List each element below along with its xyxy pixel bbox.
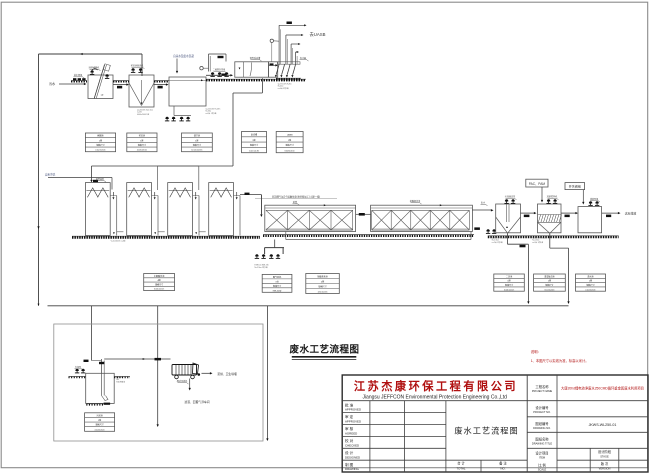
svg-text:JKWS-WL250-01: JKWS-WL250-01 [589,423,617,427]
svg-text:排放泵组: 排放泵组 [590,197,598,201]
svg-text:PAC、PAM: PAC、PAM [529,182,546,186]
svg-text:出水: 出水 [481,201,486,205]
svg-text:审 定: 审 定 [345,414,354,419]
svg-text:调节池: 调节池 [194,134,200,138]
svg-text:1号: 1号 [100,93,103,97]
svg-text:污泥泵: 污泥泵 [75,365,81,369]
svg-text:二沉池: 二沉池 [506,274,512,278]
svg-text:去UASB: 去UASB [310,31,326,38]
svg-text:1座: 1座 [507,279,510,283]
svg-text:初沉池: 初沉池 [139,134,145,138]
svg-text:自来冲洗: 自来冲洗 [45,173,56,177]
svg-text:1座: 1座 [288,138,291,142]
svg-text:APPROVED: APPROVED [345,408,361,412]
svg-text:混凝反应池: 混凝反应池 [544,274,554,278]
svg-text:1座: 1座 [548,279,551,283]
svg-text:规格尺寸: 规格尺寸 [505,283,513,287]
svg-text:水解酸化池: 水解酸化池 [154,274,164,278]
svg-text:规格尺寸: 规格尺寸 [96,143,104,147]
svg-text:废水工艺流程图: 废水工艺流程图 [289,344,359,356]
svg-text:NO.: NO. [500,467,505,471]
svg-text:AGREED: AGREED [345,432,357,436]
svg-text:规格尺寸: 规格尺寸 [250,143,258,147]
svg-text:规格尺寸: 规格尺寸 [545,283,553,287]
svg-text:8.0x8.0x6.5m: 8.0x8.0x6.5m [285,151,296,153]
svg-text:1座: 1座 [98,418,101,422]
svg-text:进水阀组: 进水阀组 [74,73,82,77]
svg-text:清水池: 清水池 [587,274,593,278]
svg-text:PROJECT NAME: PROJECT NAME [532,389,553,393]
svg-text:4.0x3.0x3.0m: 4.0x3.0x3.0m [95,429,106,431]
svg-text:V=4x110m3 n=4座: V=4x110m3 n=4座 [111,238,126,242]
svg-text:Jiangsu JEFFCON Environmental: Jiangsu JEFFCON Environmental Protection… [362,394,507,400]
svg-text:图纸编号: 图纸编号 [535,421,549,426]
svg-text:4.0x3.0x3.5m: 4.0x3.0x3.5m [137,150,148,152]
svg-text:混合反应槽: 混合反应槽 [250,56,260,60]
svg-text:3台: 3台 [275,279,278,283]
svg-text:规格尺寸: 规格尺寸 [586,283,594,287]
svg-text:废水工艺流程图: 废水工艺流程图 [454,425,518,435]
svg-text:斜管: 斜管 [293,200,297,204]
svg-text:接触氧化池: 接触氧化池 [410,199,420,203]
svg-text:12.0x6.0x3.5m: 12.0x6.0x3.5m [191,150,203,152]
svg-text:设计项目: 设计项目 [535,450,548,455]
svg-text:滤液、回蓄气浮车间: 滤液、回蓄气浮车间 [184,400,209,404]
svg-text:DESIGNED: DESIGNED [345,455,360,459]
svg-text:规格尺寸: 规格尺寸 [138,143,146,147]
svg-text:CHECKED: CHECKED [345,443,359,447]
svg-text:4.0x2.5x3.0m: 4.0x2.5x3.0m [95,150,106,152]
svg-text:1座: 1座 [99,138,102,142]
svg-text:1座: 1座 [252,138,255,142]
svg-text:比 例: 比 例 [538,462,546,467]
svg-text:合 计: 合 计 [457,461,465,466]
svg-text:接触氧化池: 接触氧化池 [317,274,327,278]
svg-text:审 核: 审 核 [345,426,354,431]
svg-text:厢式压滤机: 厢式压滤机 [177,379,188,383]
svg-text:校 对: 校 对 [345,438,354,443]
svg-text:1座: 1座 [195,138,198,142]
svg-text:工程名称: 工程名称 [535,384,549,389]
svg-text:规格尺寸: 规格尺寸 [95,423,103,427]
svg-text:版 次: 版 次 [601,461,609,466]
svg-text:4座: 4座 [157,278,160,282]
svg-text:污泥池: 污泥池 [96,413,102,417]
svg-text:DRAWING: DRAWING [345,467,360,471]
svg-text:说明：: 说明： [531,349,541,354]
svg-text:加药搅拌机: 加药搅拌机 [547,195,558,199]
svg-text:1座: 1座 [140,138,143,142]
svg-text:批 准: 批 准 [345,402,354,407]
svg-text:规格尺寸: 规格尺寸 [193,143,201,147]
svg-text:图纸名称: 图纸名称 [535,437,549,442]
svg-text:3.0x3.0x4.0m: 3.0x3.0x4.0m [544,289,555,291]
svg-text:DRAWING TITLE: DRAWING TITLE [532,442,552,446]
svg-text:ITEM: ITEM [539,455,545,459]
svg-text:反应槽: 反应槽 [251,133,257,137]
svg-text:备 注: 备 注 [499,461,507,466]
svg-text:PROJECT NO.: PROJECT NO. [533,410,551,414]
svg-text:规格尺寸: 规格尺寸 [155,282,163,286]
svg-text:VERSION: VERSION [599,466,611,470]
svg-text:4.0x3.0x3.0m: 4.0x3.0x3.0m [585,289,596,291]
svg-text:开关阀组: 开关阀组 [569,184,581,189]
svg-text:设计阶段: 设计阶段 [598,449,612,454]
svg-text:DRAWING NO.: DRAWING NO. [533,426,551,430]
svg-text:泥饼、卫生填埋: 泥饼、卫生填埋 [217,372,237,376]
svg-text:设计编号: 设计编号 [535,405,549,410]
svg-text:STAGE: STAGE [600,454,609,458]
svg-text:达标排放: 达标排放 [625,210,637,215]
svg-text:SCALE: SCALE [538,467,547,471]
svg-text:二级提升泵组: 二级提升泵组 [213,68,225,72]
svg-text:TOTAL: TOTAL [456,467,465,471]
svg-text:2.0x1.5x1.8m: 2.0x1.5x1.8m [249,151,260,153]
svg-text:布水器: 布水器 [300,56,307,60]
svg-text:回转格栅机: 回转格栅机 [89,66,100,70]
svg-text:1、本图尺寸以实线为准，标高以米计。: 1、本图尺寸以实线为准，标高以米计。 [531,358,589,363]
svg-text:江苏杰康环保工程有限公司: 江苏杰康环保工程有限公司 [354,379,518,393]
svg-text:自来水及废水混凝: 自来水及废水混凝 [173,54,194,58]
svg-text:制 图: 制 图 [345,462,354,467]
svg-text:规格尺寸: 规格尺寸 [273,284,281,288]
svg-text:设 计: 设 计 [345,450,354,455]
svg-text:污水: 污水 [49,81,56,86]
svg-text:6.0x4.0x4.5m: 6.0x4.0x4.5m [154,289,165,291]
svg-text:UASB: UASB [287,134,293,137]
svg-text:大康20t/d锂电池净废水250CMD循环重金属废水利用项目: 大康20t/d锂电池净废水250CMD循环重金属废水利用项目 [561,386,644,391]
svg-text:1座: 1座 [589,279,592,283]
svg-text:APPROVED: APPROVED [345,420,361,424]
svg-text:污泥回流泵: 污泥回流泵 [505,195,515,199]
svg-text:规格尺寸: 规格尺寸 [318,284,326,288]
svg-text:ESR-100型: ESR-100型 [273,289,282,292]
svg-text:格栅池: 格栅池 [97,134,103,138]
svg-text:22x4.0x4.5m: 22x4.0x4.5m [318,291,328,293]
svg-text:规格尺寸: 规格尺寸 [285,143,293,147]
svg-text:6.0x6.0x4.0m: 6.0x6.0x4.0m [504,289,515,291]
svg-text:2座: 2座 [321,279,324,283]
svg-text:曝气风机: 曝气风机 [273,275,282,279]
svg-text:间沟曝气加2个接触氧化池特殊加工(土建一级): 间沟曝气加2个接触氧化池特殊加工(土建一级) [272,194,321,198]
